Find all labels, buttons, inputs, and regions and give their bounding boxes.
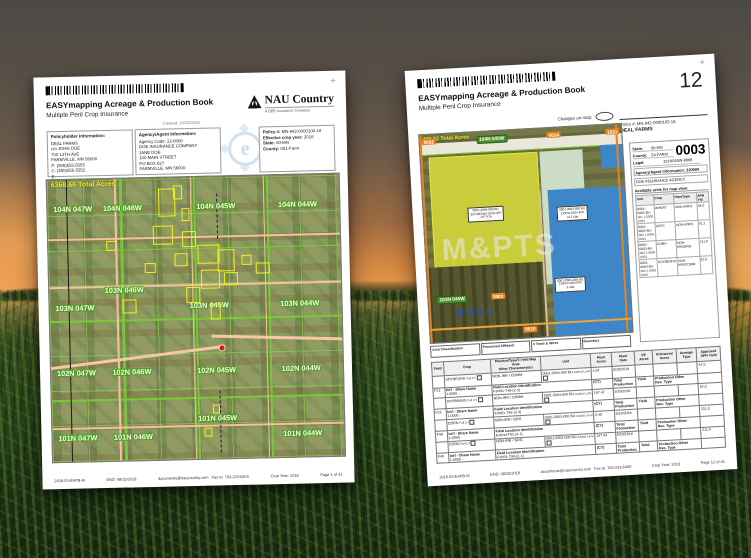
water-blue-corner [600, 144, 623, 168]
document-page-1[interactable]: ✛ EASYmapping Acreage & Production Book … [33, 71, 354, 490]
township-label: 101N 047W [58, 433, 97, 443]
field-outline [186, 287, 200, 303]
unit-sub: 001 1.0000 A001 [638, 214, 654, 223]
policy-summary-block: Policy #: MN-942-0000100-18 DEAL FARMS [620, 114, 709, 134]
field-outline [172, 186, 182, 199]
field-info-label: 0001-0004-000 BU SOYBEANS NON-IRR 197.47… [468, 206, 504, 223]
contact-fax: Fax to: 763-233-6400 [594, 464, 631, 471]
added-land-label: Added Land [574, 369, 590, 374]
contact-fax: Fax to: 763-233-6400 [212, 474, 249, 480]
nau-logo-tagline: A QBE Insurance Company [265, 106, 334, 114]
township-label: 103N 044W [280, 298, 319, 308]
added-land-checkbox[interactable] [543, 375, 548, 380]
township-label: 103N 046W [105, 285, 144, 295]
strip-box-area-classification: Area Classification [430, 343, 480, 358]
col-field: Field [431, 362, 444, 377]
unit-crop: CORN [656, 240, 677, 259]
col-plant-date: Plant Date [611, 351, 635, 367]
row-crop: CORN [449, 442, 460, 447]
unit-sub: 004 1.0000 A001 [641, 268, 657, 277]
unit-crop: WHEAT [654, 204, 675, 223]
row-crop: SOYBEANS [446, 398, 466, 403]
unit-crop: SOYBEANS [657, 258, 678, 277]
road-tag: 0022 [421, 139, 436, 146]
production-other-label: Production Other Rec. Type [657, 438, 702, 451]
contact-info: documents@naucountry.com Fax to: 763-233… [158, 474, 249, 481]
field-outline [210, 303, 221, 319]
nau-triangle-icon [246, 94, 261, 109]
row-field-id: F22 [434, 409, 446, 420]
acreage-report-table: Field Crop Practice/Type/T-Yield Map Are… [431, 346, 726, 464]
contact-email: documents@naucountry.com [158, 475, 208, 481]
township-label: 101N 045W [198, 413, 237, 423]
fall-cy-label: Fall CY [466, 376, 476, 381]
field-info-label: 0001-0003-000 BU CORN NON-IRR 147.44a [557, 205, 588, 222]
policy-value: 001-Farm [280, 145, 299, 150]
road-tag: 1031 [605, 128, 620, 135]
road-tag: 0003 [491, 293, 506, 300]
field-outline [204, 428, 212, 437]
yield-label: Yield [640, 441, 658, 452]
field-detail-map: 409.32 Total Acres 104N 045W 103N 045W 0… [418, 123, 633, 344]
township-label: 104N 045W [196, 201, 235, 211]
sidebar-value: 00-MN [651, 144, 663, 150]
added-land-checkbox[interactable] [544, 397, 549, 402]
row-crop: CORN [448, 420, 459, 425]
row-field-id: F21 [433, 387, 445, 398]
row-crop: SOYBEANS [445, 377, 465, 382]
fall-cy-checkbox[interactable] [476, 375, 481, 380]
page-number: Page 1 of 41 [320, 472, 342, 477]
field-outline [182, 231, 196, 247]
fall-cy-checkbox[interactable] [470, 419, 475, 424]
end-date: END: 08/15/2018 [106, 476, 136, 482]
created-date: Created: 10/15/2018 [162, 120, 199, 126]
total-acres-label: 6368.66 Total Acres [51, 181, 116, 189]
township-label: 102N 047W [57, 368, 96, 378]
road-tag: 0010 [523, 326, 538, 333]
added-land-label: Added Land [575, 391, 591, 396]
unit-plan: NON-IRR/S [675, 221, 699, 240]
added-land-label: Added Land [577, 434, 593, 439]
field-info-label: 0001-0003-000 BU CORN NON-IRR 3.40a [555, 276, 586, 293]
col-approved-aph: Approved APH Yield [696, 346, 720, 362]
unit-aph: 211.0 [699, 238, 712, 257]
page-title: EASYmapping Acreage & Production Book [418, 85, 585, 103]
unit-plan: NON-IRR/GRG [676, 239, 700, 258]
place-name-label: ROCK [457, 306, 496, 318]
strip-box-trees-wires: # Trees & Wires [531, 338, 581, 353]
fall-cy-checkbox[interactable] [478, 397, 483, 402]
contact-info: documents@naucountry.com Fax to: 763-233… [541, 464, 632, 474]
township-label: 104N 044W [278, 200, 317, 210]
field-outline [212, 405, 220, 414]
unit-aph: 57.0 [700, 256, 713, 275]
document-page-12[interactable]: ✛ EASYmapping Acreage & Production Book … [405, 54, 738, 487]
contact-email: documents@naucountry.com [541, 466, 592, 474]
col-acreage-type: Acreage Type [676, 348, 697, 363]
policyholder-info-box: Policyholder Information: DEAL FARMS c/o… [47, 129, 134, 177]
changes-label: Changes on map: [557, 115, 592, 122]
col-pp-acres: PP Acres [635, 350, 653, 365]
crop-year: Crop Year: 2018 [652, 461, 680, 468]
agency-info-box: Agency/Agent Information: Agency Code: 2… [135, 127, 222, 175]
row-field-id: F49 [437, 453, 449, 464]
road-tag: 0014 [547, 132, 562, 139]
policy-label: County: [263, 146, 279, 151]
strip-box-boundary: Boundary [581, 335, 631, 350]
barcode-icon [417, 72, 555, 89]
field-outline [174, 253, 188, 267]
sidebar-label: County: [633, 152, 652, 158]
cy-label: (CY) [596, 443, 617, 455]
field-outline [218, 249, 235, 271]
crop-year: Crop Year: 2018 [270, 473, 298, 479]
field-outline [106, 241, 116, 252]
township-label: 104N 046W [103, 204, 142, 214]
added-land-checkbox[interactable] [546, 419, 551, 424]
added-land-checkbox[interactable] [547, 441, 552, 446]
unit-aph: 91.2 [698, 220, 711, 239]
added-land-label: Added Land [576, 413, 592, 418]
fall-cy-checkbox[interactable] [471, 441, 476, 446]
page-number: Page 12 of 41 [701, 459, 725, 465]
sidebar-label: State: [632, 145, 651, 151]
field-outline [241, 255, 252, 266]
policy-value: 2018 [304, 134, 314, 139]
end-date: END: 08/15/2018 [490, 470, 520, 477]
field-outline [256, 263, 270, 274]
township-label: 102N 046W [112, 367, 151, 377]
sidebar-value: 54-FARM [651, 151, 668, 157]
large-page-number: 12 [679, 68, 704, 93]
field-outline [145, 262, 156, 273]
barcode-icon [46, 83, 184, 95]
policy-info-box: Policy #: MN-942-0000100-18 Effective cr… [259, 125, 336, 173]
township-label: 102N 045W [197, 365, 236, 375]
sidebar-value: 101N045W-8888 [663, 157, 693, 164]
unit-plan: NON-IRR/COMM [677, 257, 701, 276]
unit-crop: OATS [655, 222, 676, 241]
township-label: 101N 046W [114, 432, 153, 442]
map-watermark: M&PTS [441, 228, 558, 268]
unit-sub: 003 1.0000 A001 [640, 250, 656, 259]
township-label: 104N 047W [53, 205, 92, 215]
field-outline [224, 272, 238, 286]
policy-label: State: [263, 140, 275, 145]
township-overview-map: 6368.66 Total Acres 104N 047W 104N 046W … [46, 173, 346, 464]
registration-mark-icon: ✛ [330, 78, 335, 85]
unit-sub: 002 1.0000 A001 [639, 232, 655, 241]
page-title: EASYmapping Acreage & Production Book [46, 98, 213, 111]
agency-line: Agency/Agent Information: 220000 [635, 166, 699, 175]
fall-cy-label: Fall CY [460, 442, 470, 447]
available-units-table: Unit Crop Plan/Type APH Yld 0001-0001-BU… [635, 192, 714, 279]
unit-plan: NON-IRR/S [674, 203, 698, 222]
col-uninsured: Uninsured Acres [652, 349, 676, 365]
changes-oval-field[interactable] [595, 111, 613, 121]
field-outline [153, 225, 173, 244]
fall-cy-label: Fall CY [467, 398, 477, 403]
township-label: 101N 044W [283, 428, 322, 438]
page-footer: 2018.03-EAPB-M END: 08/15/2018 documents… [54, 472, 342, 484]
field-outline [122, 300, 136, 314]
nau-country-logo: NAU Country A QBE Insurance Company [246, 93, 334, 114]
col-plant-acres: Plant Acres [590, 352, 611, 367]
agency-line: FARMVILLE, MN 56000 [139, 165, 217, 172]
unit-row: 0001-0004-BU004 1.0000 A001 SOYBEANS NON… [639, 256, 713, 278]
fall-cy-label: Fall CY [459, 420, 469, 425]
form-number: 2018.03-EAPB-M [54, 478, 84, 484]
farm-number: 0003 [675, 141, 706, 158]
unit-aph: 46.0 [697, 202, 710, 221]
form-number: 2018.03-EAPB-M [439, 473, 470, 480]
row-field-id: F48 [435, 431, 447, 442]
page-subtitle: Multiple Peril Crop Insurance [46, 110, 128, 119]
field-outline [182, 208, 190, 221]
total-production-label: Total Production [616, 442, 640, 454]
field-outline [197, 244, 220, 263]
changes-on-map-field: Changes on map: [557, 111, 613, 123]
nau-logo-name: NAU Country [264, 93, 334, 107]
farm-summary-panel: 0003 State:00-MN County:54-FARM Legal:10… [629, 138, 720, 342]
strip-box-processed-affidavit: Processed Affidavit [480, 340, 530, 355]
sidebar-label: Legal: [633, 159, 663, 166]
township-label: 103N 047W [55, 303, 94, 313]
field-outline [201, 269, 221, 288]
registration-mark-icon: ✛ [699, 59, 704, 66]
township-label: 102N 044W [282, 363, 321, 373]
policy-value: 00-MN [276, 140, 289, 145]
